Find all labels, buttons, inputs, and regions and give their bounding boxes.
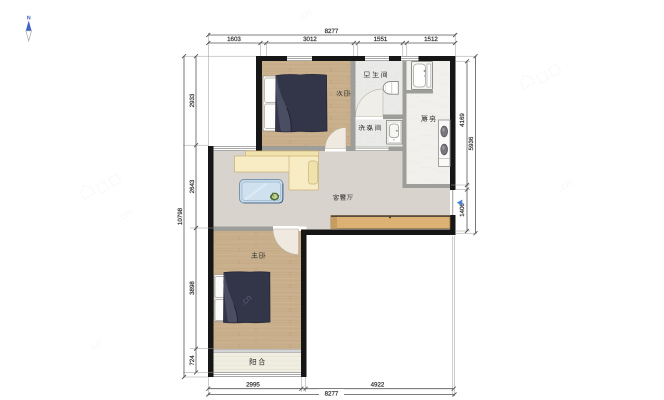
svg-text:3012: 3012 bbox=[303, 36, 317, 43]
svg-text:8277: 8277 bbox=[325, 28, 339, 35]
svg-text:2933: 2933 bbox=[189, 93, 196, 107]
svg-text:2995: 2995 bbox=[246, 382, 260, 389]
svg-text:724: 724 bbox=[189, 355, 196, 366]
svg-text:8277: 8277 bbox=[325, 390, 339, 397]
svg-text:1406: 1406 bbox=[459, 203, 466, 217]
svg-text:1603: 1603 bbox=[227, 36, 241, 43]
svg-text:1512: 1512 bbox=[424, 36, 438, 43]
svg-text:2643: 2643 bbox=[189, 179, 196, 193]
svg-text:3898: 3898 bbox=[189, 281, 196, 295]
svg-text:4169: 4169 bbox=[459, 113, 466, 127]
svg-text:10798: 10798 bbox=[177, 207, 184, 225]
svg-text:4922: 4922 bbox=[371, 382, 385, 389]
svg-text:5936: 5936 bbox=[468, 136, 475, 150]
svg-text:1551: 1551 bbox=[374, 36, 388, 43]
